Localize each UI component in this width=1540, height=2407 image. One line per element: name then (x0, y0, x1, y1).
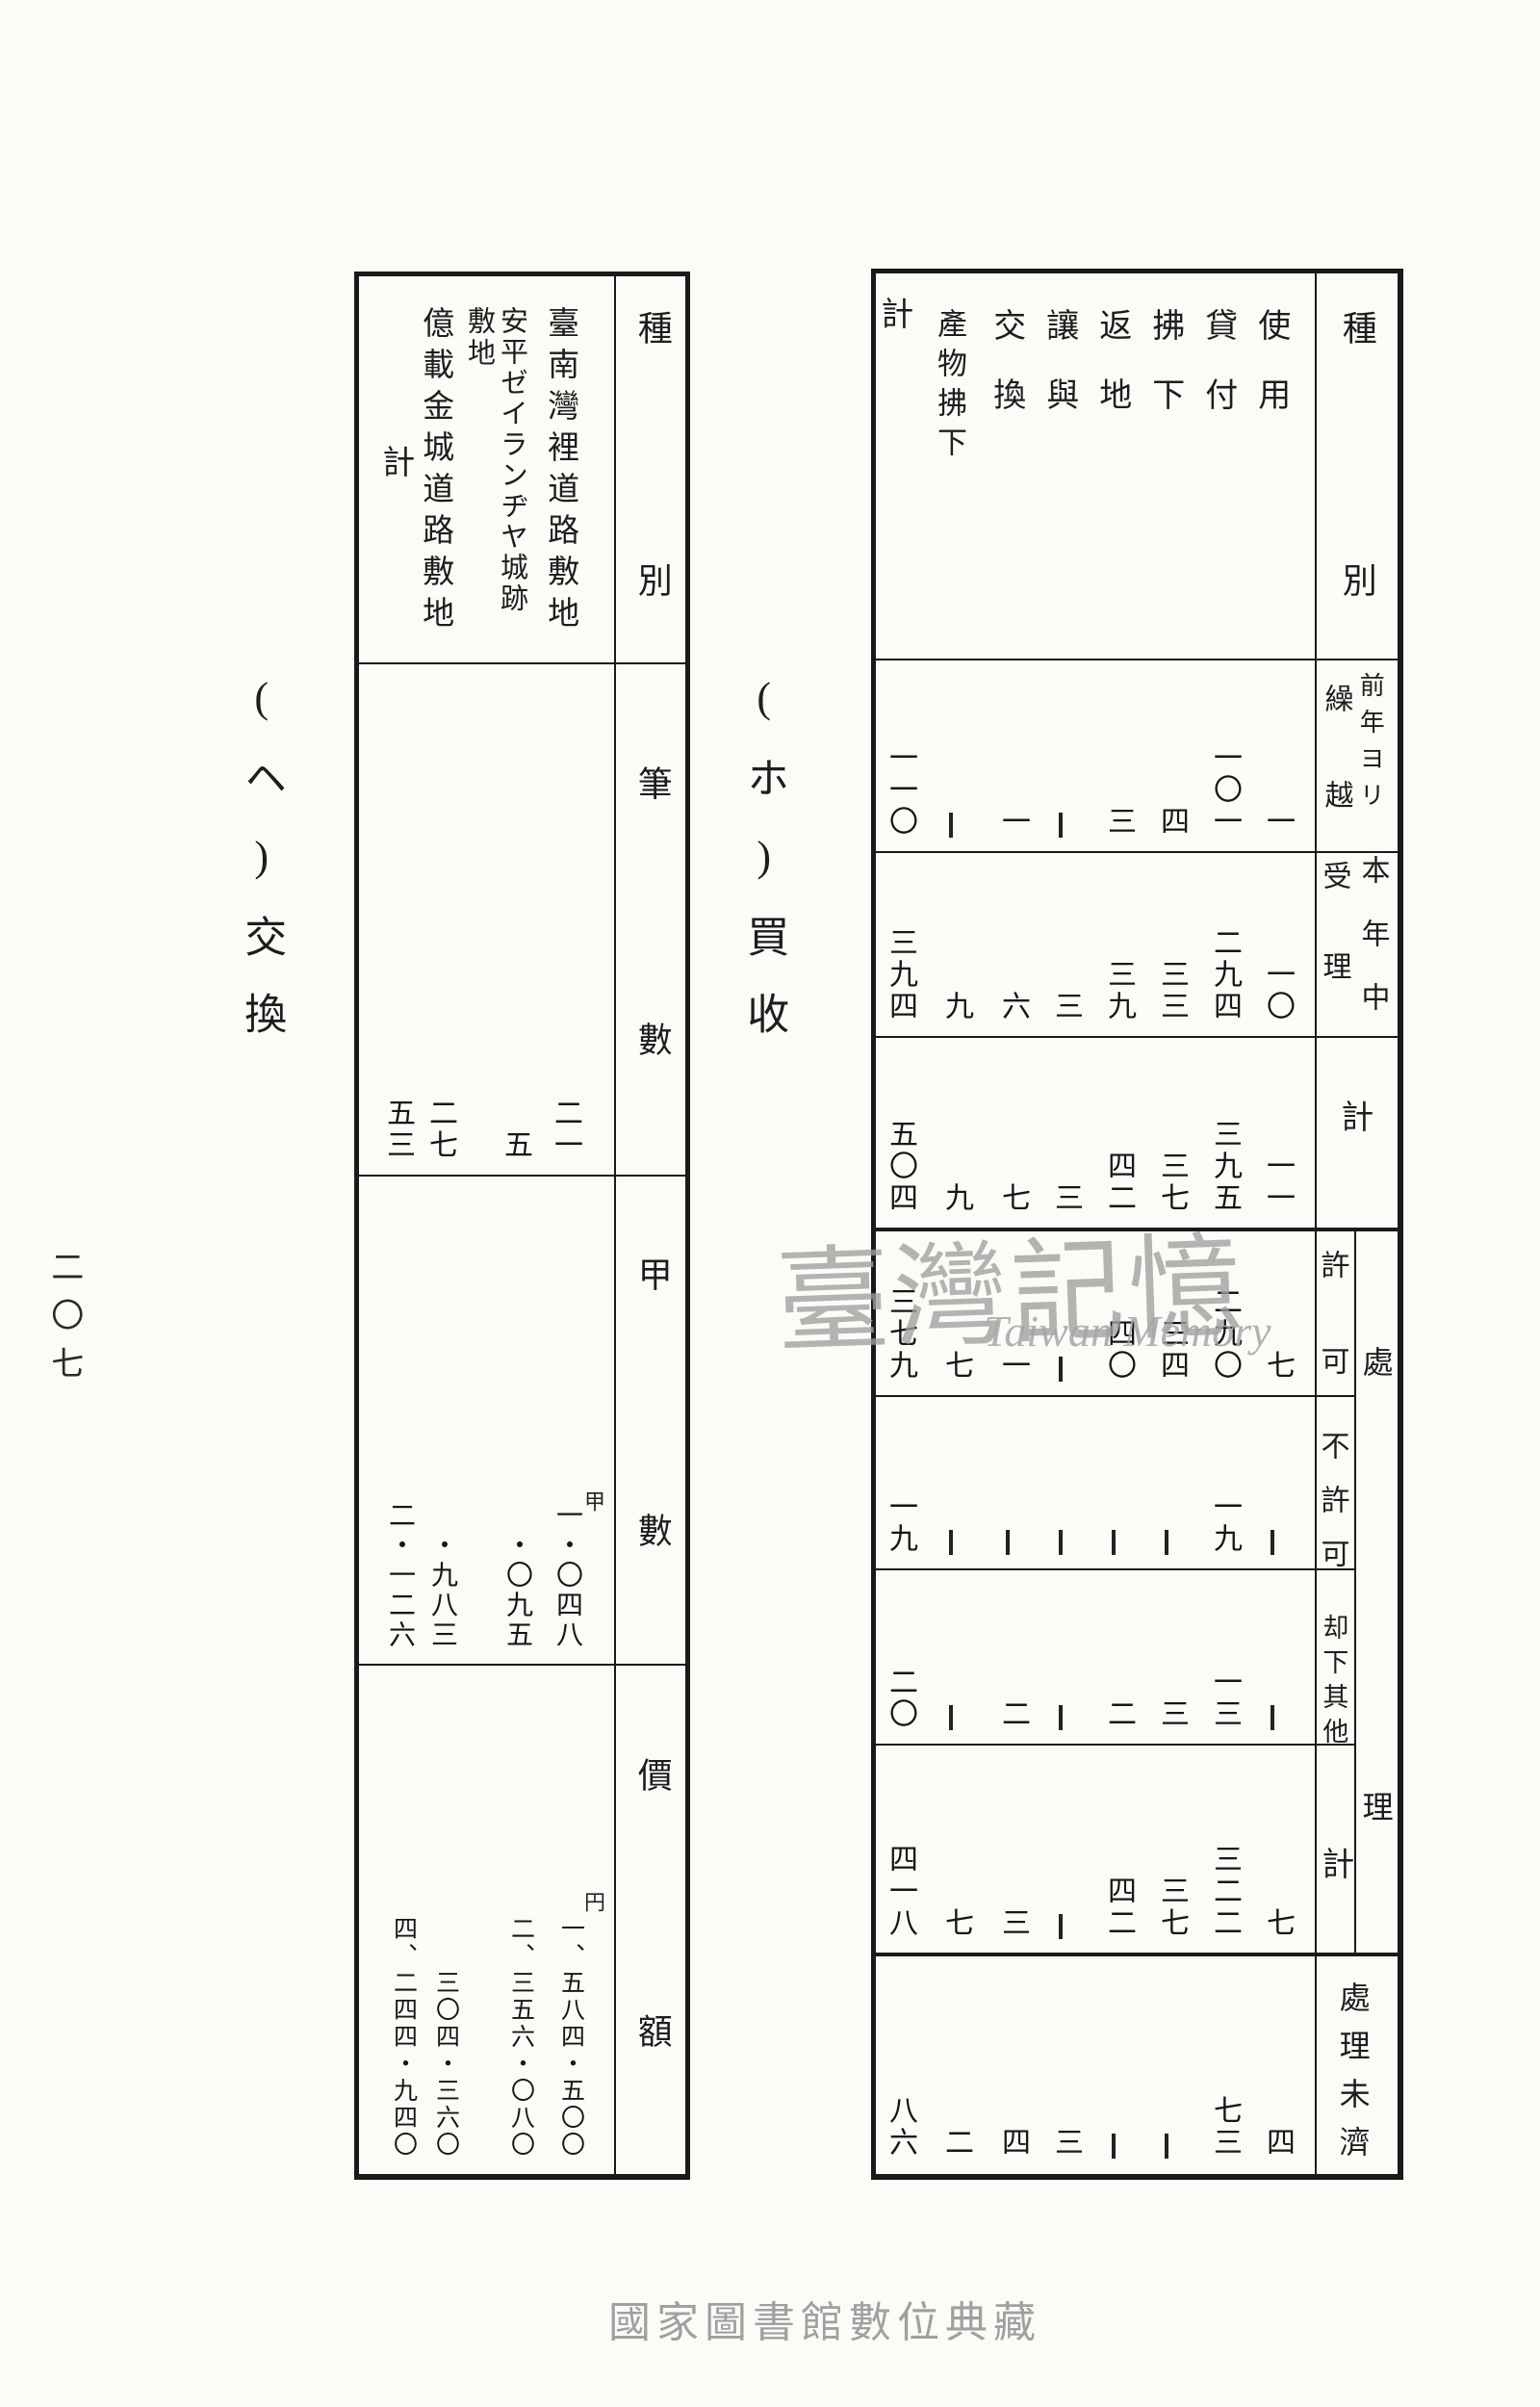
row-label-tainan-wanli: 臺南灣裡道路敷地 (543, 306, 577, 637)
purchase-cell-r2-c5: 七 (989, 1182, 1028, 1214)
exchange-cell-r0-c1: 五 (492, 1129, 530, 1161)
purchase-cell-r7-c1: 七三 (1201, 2095, 1240, 2159)
exchange-cell-r1-c1: ・〇九五 (493, 1531, 531, 1650)
purchase-cell-r6-c0: 七 (1254, 1907, 1293, 1939)
purchase-cell-r3-c1: 二九〇 (1201, 1286, 1240, 1382)
purchase-cell-r2-c1: 三九五 (1201, 1119, 1240, 1214)
purchase-cell-r6-c6: 七 (933, 1907, 971, 1939)
page-number: 二〇七 (46, 1250, 81, 1394)
left-table-title: (ヘ)交換 (239, 674, 283, 1069)
purchase-cell-r5-c0-empty-dash (1270, 1705, 1274, 1730)
header-honnenchu: 本年中 (1357, 855, 1388, 1046)
header-hissu: 筆數 (633, 765, 670, 1278)
header-kurikoshi: 繰越 (1321, 684, 1351, 876)
purchase-cell-r3-c6: 七 (933, 1350, 971, 1382)
purchase-cell-r2-c4: 三 (1042, 1182, 1081, 1214)
purchase-cell-r4-c6-empty-dash (949, 1530, 953, 1555)
purchase-cell-r6-c2: 三七 (1148, 1876, 1187, 1939)
purchase-column-label-4: 讓與 (1041, 308, 1076, 447)
exchange-cell-r1-c2: ・九八三 (418, 1531, 456, 1650)
row-label-anping-zeelandia-line2: 敷地 (464, 306, 493, 370)
purchase-cell-r4-c1: 一九 (1201, 1491, 1240, 1555)
header-kosu: 甲數 (633, 1256, 670, 1769)
exchange-cell-r2-c3: 四、二四四・九四〇 (377, 1916, 416, 2159)
purchase-column-label-7: 計 (876, 297, 911, 329)
purchase-cell-r2-c6: 九 (933, 1182, 971, 1214)
exchange-cell-r0-c3: 五三 (374, 1098, 413, 1161)
header-juri: 受理 (1319, 861, 1349, 1042)
purchase-cell-r4-c2-empty-dash (1165, 1530, 1168, 1555)
scanned-page: 臺灣記憶 Taiwan Memory 國家圖書館數位典藏 二〇七 (ホ)買收 (… (0, 0, 1540, 2407)
purchase-cell-r0-c4-empty-dash (1059, 813, 1063, 838)
purchase-cell-r2-c0: 一一 (1254, 1151, 1293, 1214)
purchase-cell-r7-c3-empty-dash (1112, 2134, 1116, 2159)
purchase-cell-r1-c1: 二九四 (1201, 927, 1240, 1022)
purchase-cell-r5-c5: 二 (989, 1698, 1028, 1730)
footer-library-credit: 國家圖書館數位典藏 (608, 2288, 1041, 2349)
purchase-cell-r0-c6-empty-dash (949, 813, 953, 838)
purchase-cell-r1-c6: 九 (933, 991, 971, 1022)
right-table-title: (ホ)買收 (741, 674, 785, 1069)
purchase-column-label-3: 返地 (1094, 308, 1129, 447)
header-kyoka: 許可 (1317, 1250, 1347, 1442)
purchase-cell-r7-c4: 三 (1042, 2127, 1081, 2159)
exchange-cell-r1-c0: 一・〇四八 (543, 1501, 581, 1650)
purchase-cell-r4-c7: 一九 (877, 1491, 915, 1555)
purchase-column-label-2: 拂下 (1147, 308, 1182, 447)
purchase-cell-r6-c3: 四二 (1095, 1876, 1134, 1939)
purchase-cell-r5-c3: 二 (1095, 1698, 1134, 1730)
purchase-cell-r6-c1: 三二二 (1201, 1844, 1240, 1939)
purchase-cell-r3-c4-empty-dash (1059, 1357, 1063, 1382)
purchase-column-label-0: 使用 (1253, 308, 1288, 447)
row-label-total: 計 (377, 445, 412, 478)
purchase-cell-r0-c2: 四 (1148, 806, 1187, 838)
purchase-cell-r3-c7: 三七九 (877, 1286, 915, 1382)
purchase-cell-r5-c2: 三 (1148, 1698, 1187, 1730)
header-fukyoka: 不許可 (1317, 1431, 1347, 1592)
unit-label-甲數: 甲 (577, 1490, 608, 1512)
purchase-cell-r7-c5: 四 (989, 2127, 1028, 2159)
header-shori-mizumi: 處理未濟 (1336, 1981, 1369, 2174)
header-kyakka-sonota: 却下其他 (1320, 1614, 1347, 1752)
header-kagaku: 價額 (633, 1757, 670, 2269)
purchase-cell-r7-c0: 四 (1254, 2127, 1293, 2159)
purchase-cell-r0-c1: 一〇一 (1201, 742, 1240, 838)
purchase-column-label-5: 交換 (988, 308, 1023, 447)
purchase-cell-r5-c1: 一三 (1201, 1667, 1240, 1730)
purchase-cell-r5-c6-empty-dash (949, 1705, 953, 1730)
purchase-cell-r1-c5: 六 (989, 991, 1028, 1022)
purchase-cell-r7-c6: 二 (933, 2127, 971, 2159)
header-kei: 計 (1336, 1100, 1371, 1132)
purchase-cell-r3-c0: 七 (1254, 1350, 1293, 1382)
purchase-cell-r4-c5-empty-dash (1006, 1530, 1010, 1555)
purchase-cell-r0-c7: 一一〇 (877, 742, 915, 838)
unit-label-價額: 円 (577, 1891, 608, 1912)
purchase-cell-r3-c5: 一 (989, 1350, 1028, 1382)
row-label-yizai-jincheng: 億載金城道路敷地 (418, 306, 451, 637)
purchase-cell-r7-c2-empty-dash (1165, 2134, 1168, 2159)
exchange-cell-r0-c0: 二一 (542, 1098, 580, 1161)
purchase-cell-r0-c0: 一 (1254, 806, 1293, 838)
purchase-cell-r1-c3: 三九 (1095, 959, 1134, 1022)
purchase-cell-r7-c7: 八六 (877, 2095, 915, 2159)
purchase-cell-r2-c7: 五〇四 (877, 1119, 915, 1214)
exchange-cell-r2-c0: 一、五八四・五〇〇 (545, 1916, 583, 2159)
purchase-cell-r3-c2: 三四 (1148, 1318, 1187, 1382)
exchange-cell-r2-c1: 二、三五六・〇八〇 (495, 1916, 533, 2159)
purchase-cell-r6-c5: 三 (989, 1907, 1028, 1939)
purchase-cell-r4-c3-empty-dash (1112, 1530, 1116, 1555)
purchase-column-label-1: 貸付 (1200, 308, 1235, 447)
purchase-cell-r1-c0: 一〇 (1254, 959, 1293, 1022)
purchase-cell-r1-c7: 三九四 (877, 927, 915, 1022)
purchase-cell-r1-c4: 三 (1042, 991, 1081, 1022)
header-shubetsu: 種別 (633, 310, 670, 815)
purchase-cell-r1-c2: 三三 (1148, 959, 1187, 1022)
purchase-cell-r6-c4-empty-dash (1059, 1914, 1063, 1939)
exchange-cell-r0-c2: 二七 (417, 1098, 455, 1161)
row-label-anping-zeelandia: 安平ゼイランヂヤ城跡 (497, 306, 526, 614)
purchase-cell-r0-c3: 三 (1095, 806, 1134, 838)
purchase-cell-r0-c5: 一 (989, 806, 1028, 838)
exchange-cell-r2-c2: 三〇四・三六〇 (420, 1970, 458, 2159)
purchase-column-label-6: 產物拂下 (934, 308, 965, 466)
purchase-cell-r3-c3: 四〇 (1095, 1318, 1134, 1382)
purchase-cell-r5-c7: 二〇 (877, 1667, 915, 1730)
header-shori-kei: 計 (1317, 1847, 1351, 1879)
purchase-cell-r5-c4-empty-dash (1059, 1705, 1063, 1730)
purchase-cell-r2-c3: 四二 (1095, 1151, 1134, 1214)
exchange-cell-r1-c3: 二・一二六 (375, 1501, 414, 1650)
header-zennen-yori: 前年ヨリ (1357, 672, 1383, 818)
purchase-cell-r6-c7: 四一八 (877, 1844, 915, 1939)
purchase-cell-r4-c4-empty-dash (1059, 1530, 1063, 1555)
purchase-cell-r4-c0-empty-dash (1270, 1530, 1274, 1555)
purchase-cell-r2-c2: 三七 (1148, 1151, 1187, 1214)
